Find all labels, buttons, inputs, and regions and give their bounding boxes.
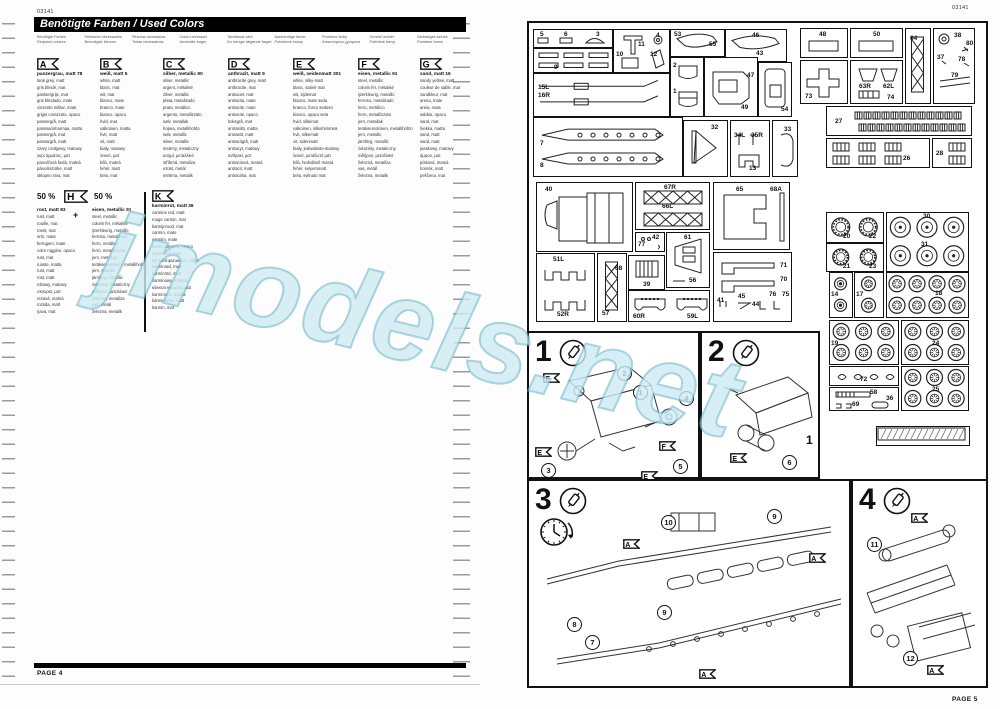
color-translation: hiekka, matta <box>420 126 480 133</box>
color-translation: jern, metallic <box>92 268 152 275</box>
color-translation: vit, matt <box>100 139 160 146</box>
part-art <box>714 253 790 320</box>
color-translation: sand, matt <box>420 132 480 139</box>
color-translation: pansergrå, mat <box>37 132 97 139</box>
color-flag-F: F <box>659 441 676 451</box>
color-flag-A: A <box>623 539 640 549</box>
part-number: 27 <box>835 118 842 125</box>
color-translation: srebrna, metalik <box>163 173 223 180</box>
color-translation: páncélszürke, matt <box>37 166 97 173</box>
color-flag-F: F <box>543 373 560 383</box>
color-translation: color ruggine, opaco <box>37 248 97 255</box>
color-translation: carmine red, matt <box>152 210 212 217</box>
color-translation: anthracite, mat <box>228 85 288 92</box>
color-translation: karmijnrood, mat <box>152 224 212 231</box>
color-translation: bílá, hedvábně matná <box>293 160 353 167</box>
color-translation: ασημί, μεταλλικό <box>163 153 223 160</box>
color-translation: ruoste, matta <box>37 262 97 269</box>
color-flag-A: A <box>699 669 716 679</box>
sprue-cell: 17 <box>854 272 884 318</box>
color-translation: coloris fer, métalisé <box>358 85 418 92</box>
part-number: 11 <box>638 41 645 48</box>
color-translation: żelazisty, metaliczny <box>92 282 152 289</box>
part-art <box>887 273 967 316</box>
part-number: 38 <box>954 32 961 39</box>
divider-line <box>144 192 146 332</box>
part-art <box>705 58 756 115</box>
color-translation: písková, matná <box>420 160 480 167</box>
part-number: 22 <box>869 233 876 240</box>
color-translation: silver, metallic <box>163 139 223 146</box>
part-number: 43 <box>756 50 763 57</box>
svg-text:G: G <box>423 59 430 69</box>
part-number: 25 <box>932 386 939 393</box>
color-translation: γκρι άρματος, ματ <box>37 153 97 160</box>
color-translation: železna, metalik <box>358 173 418 180</box>
color-flag-E: E <box>535 447 552 457</box>
subheader-cluster: Tarvittavat väritDu trenger følgende far… <box>227 35 273 44</box>
color-translation: jern, metallak <box>92 255 152 262</box>
color-translation: karminrød, mat <box>152 251 212 258</box>
color-translation: couleur de sable, mat <box>420 85 480 92</box>
color-letter-flag: C <box>163 58 223 70</box>
color-flag-A: A <box>927 665 944 675</box>
color-letter-flag: A <box>37 58 97 70</box>
part-number: 60R <box>633 313 645 320</box>
sprue-cell: 63R62L74 <box>850 60 903 104</box>
part-drawing <box>537 183 631 250</box>
sprue-cell: 51L52R <box>536 253 595 322</box>
glue-icon <box>883 487 911 515</box>
color-letter-flag: K <box>152 190 212 202</box>
sprue-cell: 50 <box>850 28 903 58</box>
glue-icon <box>559 339 587 367</box>
part-flag-E: E <box>535 447 552 457</box>
step-4-box: 41112AA <box>851 479 988 688</box>
part-number: 56 <box>689 277 696 284</box>
part-art <box>534 118 681 175</box>
sprue-cell: 1011412 <box>613 29 670 73</box>
subheader-cluster: Benötigte FarbenRequired colours <box>37 35 83 44</box>
color-translation: rust, mat <box>37 255 97 262</box>
svg-text:B: B <box>103 59 110 69</box>
sprue-cell: 15L16R <box>533 73 670 117</box>
color-translation: antrasitt, matt <box>228 132 288 139</box>
color-translation: bela, svilnato mat <box>293 173 353 180</box>
color-translation: żelazisty, metaliczny <box>358 146 418 153</box>
part-number: 17 <box>856 291 863 298</box>
used-colors-title: Benötigte Farben / Used Colors <box>40 18 204 30</box>
sprue-cell: 7742 <box>635 232 665 252</box>
color-translation: vit, sidenmatt <box>293 139 353 146</box>
color-translation: white, matt <box>100 78 160 85</box>
part-flag-A: A <box>623 539 640 549</box>
svg-text:D: D <box>231 59 238 69</box>
part-number: 61 <box>684 234 691 241</box>
part-number: 5 <box>540 31 544 38</box>
callout-part-5: 5 <box>673 459 688 474</box>
color-translation: rust, matt <box>37 268 97 275</box>
sprue-cell: 27 <box>826 106 972 136</box>
color-translation: rust, matt <box>37 214 97 221</box>
step-3-box: 3109987AAA <box>527 479 851 688</box>
clock-wrap <box>537 515 575 551</box>
mix-right-percent: 50 % <box>94 192 112 201</box>
color-translation: pansargrå, matt <box>37 139 97 146</box>
sprue-cell: 33 <box>772 120 798 177</box>
part-number: 52R <box>557 311 569 318</box>
part-number: 77 <box>638 241 645 248</box>
part-art <box>537 183 631 250</box>
svg-text:A: A <box>811 556 816 563</box>
part-number: 20 <box>843 233 850 240</box>
sprue-cell: 26 <box>826 138 930 168</box>
sprue-cell: 73 <box>800 60 848 104</box>
color-translation: white, silky-matt <box>293 78 353 85</box>
part-flag-A: A <box>699 669 716 679</box>
color-translation: ferro, metálico <box>92 241 152 248</box>
color-translation: hvid, silkemat <box>293 119 353 126</box>
color-translation: steel, metallic <box>92 214 152 221</box>
part-number: 68A <box>770 186 782 193</box>
color-translation: bianco, opaco <box>100 112 160 119</box>
color-translation: plata, metalizado <box>163 98 223 105</box>
sprue-cell: 78 <box>533 117 683 177</box>
color-translation: pancéřová šedá, matná <box>37 160 97 167</box>
part-number: 59L <box>687 313 698 320</box>
part-number: 44 <box>752 301 759 308</box>
color-translation: ανθρακί, ματ <box>228 153 288 160</box>
color-translation: sabbia, opaco <box>420 112 480 119</box>
svg-text:A: A <box>701 672 706 679</box>
callout-part-7: 7 <box>585 635 600 650</box>
subheader-cluster: Pinturas necesariasTintas necessárias <box>132 35 178 44</box>
part-drawing <box>705 58 756 115</box>
part-number: 1 <box>806 433 813 447</box>
right-page-code: 03141 <box>952 5 969 11</box>
svg-text:E: E <box>537 450 542 457</box>
color-translation: rjava, mat <box>37 309 97 316</box>
color-column-F: Feisen, metallic 91steel, metalliccolori… <box>358 58 418 180</box>
color-translation: antracite, opaco <box>228 112 288 119</box>
part-drawing <box>714 253 790 320</box>
color-translation: antracitgrå, matt <box>228 139 288 146</box>
part-number: 42 <box>652 234 659 241</box>
color-translation: sand, matt <box>420 139 480 146</box>
color-translation: vas, metál <box>358 166 418 173</box>
color-translation: antracitna, mat <box>228 173 288 180</box>
callout-part-9: 9 <box>767 509 782 524</box>
part-flag-H: H <box>64 190 88 203</box>
part-number: 36 <box>886 395 893 402</box>
glue-wrap <box>732 339 760 367</box>
part-flag-F: F <box>358 58 380 70</box>
part-number: 46 <box>752 32 759 39</box>
footer-bar <box>34 663 466 668</box>
color-translation: blanc, mat <box>100 85 160 92</box>
color-translation: ferro, metallizzato <box>92 248 152 255</box>
subheader-line: Potrebne barve <box>417 40 463 45</box>
clock-icon <box>537 515 575 551</box>
part-number: 45 <box>738 293 745 300</box>
subheader-cluster: Nødvendige farverPotrzebne kolory <box>275 35 321 44</box>
part-number: 71 <box>780 262 787 269</box>
sprue-cell: 40 <box>536 182 633 252</box>
sprue-cell: 3880377879 <box>933 28 975 104</box>
part-number: 8 <box>540 162 544 169</box>
color-translation: ferro, metallizzato <box>358 112 418 119</box>
color-translation: gris blindé, mat <box>37 85 97 92</box>
glue-icon <box>559 487 587 515</box>
mix-plus-sign: + <box>73 210 78 220</box>
sprue-cell: 583669 <box>829 387 899 411</box>
subheader-line: Benodigde kleuren <box>85 40 131 45</box>
color-translation: prata, metálico <box>163 105 223 112</box>
color-translation: ferroso, metalizado <box>358 98 418 105</box>
color-translation: areia, mate <box>420 105 480 112</box>
color-letter-flag: E <box>293 58 353 70</box>
color-translation: wit, mat <box>100 92 160 99</box>
color-translation: rezavá, matná <box>37 296 97 303</box>
sprue-cell: 34L35R13 <box>730 120 770 177</box>
color-translation: fehér, matt <box>100 166 160 173</box>
part-art <box>534 74 668 115</box>
part-art <box>827 139 928 166</box>
color-column-B: Bweiß, matt 5white, mattblanc, matwit, m… <box>100 58 160 180</box>
color-translation: teräksenvärinen, metallihohto <box>358 126 418 133</box>
color-translation: ijzerkleurig, metallic <box>92 228 152 235</box>
color-translation: hvit, matt <box>100 132 160 139</box>
part-flag-F: F <box>543 373 560 383</box>
color-translation: fehér, selyemmatt <box>293 166 353 173</box>
color-translation: anthracite grey, matt <box>228 78 288 85</box>
color-translation: koksgrå, mat <box>228 119 288 126</box>
color-translation: orín, mate <box>37 234 97 241</box>
part-number: 40 <box>545 186 552 193</box>
color-translation: rouille, mat <box>37 221 97 228</box>
color-translation: antracitová, matná <box>228 160 288 167</box>
part-number: 76 <box>769 291 776 298</box>
part-number: 37 <box>937 54 944 61</box>
part-flag-D: D <box>228 58 250 70</box>
color-letter-flag: B <box>100 58 160 70</box>
color-translation: antraciet, mat <box>228 92 288 99</box>
color-translation: karminrød, matt <box>152 264 212 271</box>
color-translation: blanco, mate <box>100 98 160 105</box>
glue-wrap <box>559 487 587 515</box>
svg-text:E: E <box>732 456 737 463</box>
part-number: 30 <box>923 213 930 220</box>
color-translation: grigio corazzato, opaco <box>37 112 97 119</box>
part-number: 16R <box>538 92 550 99</box>
part-number: 35R <box>751 132 763 139</box>
color-translation: hopea, metallihohto <box>163 126 223 133</box>
color-translation: branco, mate <box>100 105 160 112</box>
color-translation: bela, mat <box>100 173 160 180</box>
sprue-cell: 67R66L <box>635 182 710 230</box>
subheader-cluster: Gerekli renklerPotřebné barvy <box>370 35 416 44</box>
sprue-cell: 19 <box>829 320 899 365</box>
color-translation: antracit, matt <box>228 166 288 173</box>
callout-part-9: 9 <box>657 605 672 620</box>
sprue-cell: 14 <box>829 272 853 318</box>
part-number: 19 <box>831 340 838 347</box>
part-number: 49 <box>741 104 748 111</box>
sprue-cell: 32 <box>683 120 728 177</box>
color-column-K: Kkarminrot, matt 36carmine red, mattroug… <box>152 190 212 312</box>
color-translation: tank grey, matt <box>37 78 97 85</box>
color-translation: valkoinen, matta <box>100 126 160 133</box>
part-flag-E: E <box>293 58 315 70</box>
part-flag-F: F <box>659 441 676 451</box>
sprue-cell: 60R59L <box>628 290 710 322</box>
sprue-cell: 2022 <box>826 212 884 243</box>
sprue-cell: 48 <box>800 28 848 58</box>
part-flag-A: A <box>809 553 826 563</box>
color-translation: homok, matt <box>420 166 480 173</box>
sprue-cell: 71704145447675 <box>713 252 792 322</box>
svg-text:F: F <box>546 376 551 383</box>
color-translation: rozsda, matt <box>37 302 97 309</box>
color-translation: sølv, metallic <box>163 132 223 139</box>
subheader-line: Required colours <box>37 40 83 45</box>
step-illustration <box>529 333 698 477</box>
step-number: 1 <box>535 337 552 367</box>
part-number: 72 <box>860 376 867 383</box>
subheader-line: Du trenger følgende farger <box>227 40 273 45</box>
svg-text:C: C <box>166 59 173 69</box>
step-1-box: 121435FEFE <box>527 331 700 479</box>
color-translation: antrasiitti, matta <box>228 126 288 133</box>
part-number: 34L <box>734 132 745 139</box>
color-column-E: Eweiß, seidenmatt 301white, silky-mattbl… <box>293 58 353 180</box>
color-translation: sand, mat <box>420 119 480 126</box>
sprue-cell: 21 <box>670 57 704 117</box>
color-translation: blanc, satiné mat <box>293 85 353 92</box>
part-number: 28 <box>936 150 943 157</box>
sprue-cell: 72 <box>829 366 899 386</box>
svg-text:E: E <box>296 59 302 69</box>
left-page-label: PAGE 4 <box>37 670 63 677</box>
subheader-cluster: Potrebne farbyΑπαιτούμενα χρώματα <box>322 35 368 44</box>
callout-part-11: 11 <box>867 537 882 552</box>
sprue-cell: 18 <box>886 272 969 318</box>
color-translation: hvid, mat <box>100 119 160 126</box>
color-translation: pansergrå, matt <box>37 119 97 126</box>
color-letter-flag: G <box>420 58 480 70</box>
color-translation: sølv, metallak <box>163 119 223 126</box>
color-translation: valkoinen, silkinhimmeä <box>293 126 353 133</box>
svg-text:A: A <box>913 516 918 523</box>
callout-part-10: 10 <box>661 515 676 530</box>
part-number: 58 <box>870 389 877 396</box>
part-art <box>827 107 970 134</box>
color-translation: vas, metál <box>92 302 152 309</box>
color-translation: silver, metallic <box>163 78 223 85</box>
step-number: 2 <box>708 337 725 367</box>
right-page-label: PAGE 5 <box>952 696 978 703</box>
part-number: 65 <box>736 186 743 193</box>
part-number: 73 <box>805 93 812 100</box>
part-number: 57 <box>602 310 609 317</box>
part-number: 63R <box>859 83 871 90</box>
callout-part-4: 4 <box>679 391 694 406</box>
left-page-code: 03141 <box>37 9 54 15</box>
part-number: 78 <box>958 56 965 63</box>
sprue-cell <box>876 426 970 446</box>
part-drawing <box>827 107 970 134</box>
mix-letter-flag: H <box>64 190 88 203</box>
color-translation: panssarinharmaa, matta <box>37 126 97 133</box>
part-number: 4 <box>656 32 660 39</box>
part-number: 51L <box>553 256 564 263</box>
color-translation: rosso carminio, opaco <box>152 244 212 251</box>
color-letter-flag: F <box>358 58 418 70</box>
part-flag-B: B <box>100 58 122 70</box>
part-number: 7 <box>540 140 544 147</box>
color-translation: argent, métalisé <box>163 85 223 92</box>
color-translation: karminröd, matt <box>152 271 212 278</box>
sprue-cell: 6857 <box>597 253 627 322</box>
color-translation: blanco, mate seda <box>293 98 353 105</box>
part-flag-C: C <box>163 58 185 70</box>
part-number: 10 <box>616 51 623 58</box>
part-art <box>830 321 897 363</box>
sprue-cell: 25 <box>901 366 969 411</box>
subheader-cluster: Colori necessariAnvendte farger <box>180 35 226 44</box>
color-translation: σιδήρου, μεταλλικό <box>92 289 152 296</box>
color-translation: σκουριά, ματ <box>37 289 97 296</box>
callout-part-3: 3 <box>541 463 556 478</box>
color-translation: srebrny, metaliczny <box>163 146 223 153</box>
part-drawing <box>830 321 897 363</box>
color-translation: kárminpiros, matt <box>152 298 212 305</box>
part-number: 62L <box>883 83 894 90</box>
color-translation: ferro, metálico <box>358 105 418 112</box>
color-translation: oklopno siva, mat <box>37 173 97 180</box>
part-number: 21 <box>843 263 850 270</box>
color-translation: arena, mate <box>420 98 480 105</box>
color-translation: λευκό, μεταξωτό ματ <box>293 153 353 160</box>
subheader-cluster: Peintures nécessairesBenodigde kleuren <box>85 35 131 44</box>
color-translation: železná, metalíza <box>358 160 418 167</box>
color-translation: karmínová, matná <box>152 292 212 299</box>
color-flag-A: A <box>809 553 826 563</box>
part-number: 80 <box>966 40 973 47</box>
color-translation: stříbrná, metalíza <box>163 160 223 167</box>
color-translation: karminowy, matowy <box>152 278 212 285</box>
svg-text:A: A <box>929 668 934 675</box>
part-number: 68 <box>615 265 622 272</box>
color-column-D: Danthrazit, matt 9anthracite grey, matta… <box>228 58 288 180</box>
color-translation: železná, metalíza <box>92 296 152 303</box>
color-translation: antracita, mate <box>228 98 288 105</box>
part-number: 69 <box>852 401 859 408</box>
color-translation: gris blindado, mate <box>37 98 97 105</box>
subheader-line: Potřebné barvy <box>370 40 416 45</box>
color-translation: teräksenvärinen, metallihohto <box>92 262 152 269</box>
color-translation: szary czołgowy, matowy <box>37 146 97 153</box>
part-drawing <box>534 118 681 175</box>
part-number: 1 <box>673 88 677 95</box>
subheader-line: Απαιτούμενα χρώματα <box>322 40 368 45</box>
step-art <box>529 333 698 477</box>
part-drawing <box>827 139 928 166</box>
color-translation: λευκό, ματ <box>100 153 160 160</box>
color-column-x: eisen, metallic 91steel, metalliccoloris… <box>92 206 152 316</box>
color-column-x: rost, matt 83rust, mattrouille, matroest… <box>37 206 97 316</box>
color-column-C: Csilber, metallic 90silver, metallicarge… <box>163 58 223 180</box>
